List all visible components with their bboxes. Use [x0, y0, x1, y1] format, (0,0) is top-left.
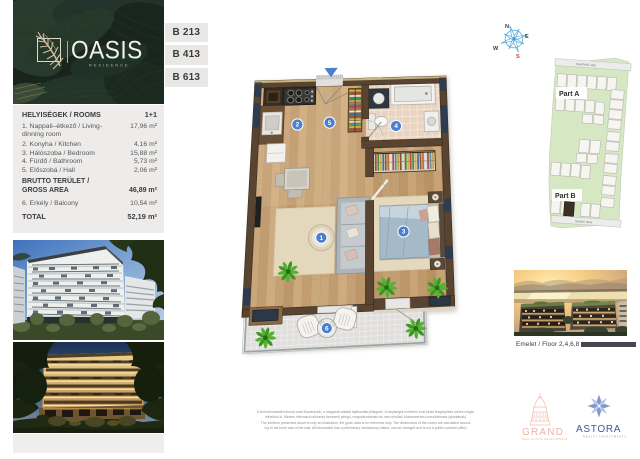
svg-text:REAL ESTATE DEVELOPMENT: REAL ESTATE DEVELOPMENT: [522, 438, 568, 441]
svg-text:6: 6: [325, 325, 329, 332]
svg-text:N: N: [505, 24, 509, 30]
svg-text:S: S: [516, 54, 520, 60]
svg-text:5: 5: [328, 120, 332, 127]
svg-text:1: 1: [319, 235, 323, 242]
svg-text:GRAND: GRAND: [522, 427, 564, 438]
svg-text:Part A: Part A: [559, 91, 579, 98]
svg-text:4: 4: [394, 123, 398, 130]
svg-text:REALTY INVESTMENTS: REALTY INVESTMENTS: [583, 436, 626, 439]
svg-text:3: 3: [402, 229, 406, 236]
svg-text:ASTORA: ASTORA: [576, 424, 621, 435]
svg-text:E: E: [525, 34, 529, 40]
svg-text:W: W: [493, 46, 499, 52]
svg-text:2: 2: [296, 122, 300, 129]
svg-text:Part B: Part B: [555, 193, 576, 200]
